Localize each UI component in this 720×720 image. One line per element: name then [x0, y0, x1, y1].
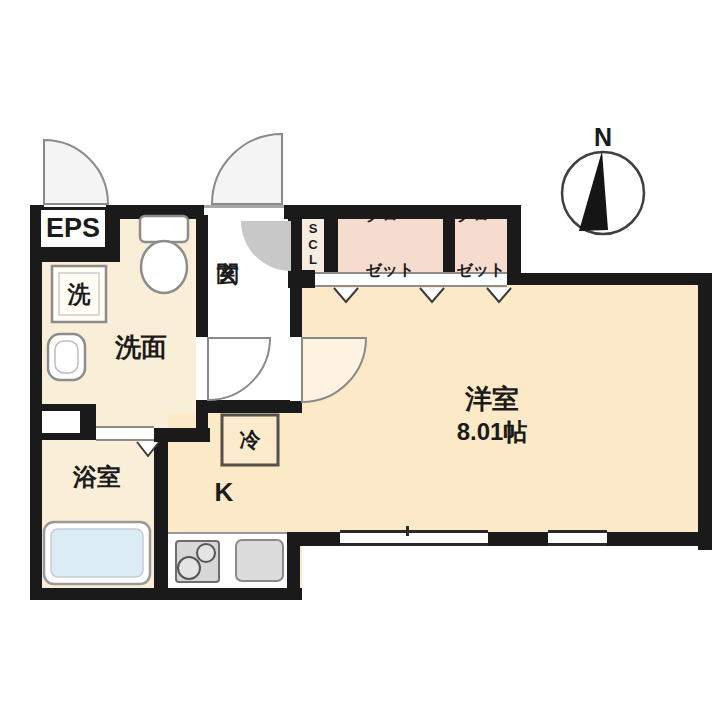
bathroom-label: 浴室 — [73, 463, 121, 491]
closet-left-line2: ゼット — [365, 261, 414, 279]
closet-door-mark — [420, 288, 444, 302]
main-room-door-swing — [302, 338, 366, 402]
kitchen-sink — [236, 540, 283, 581]
eps-door-swing — [44, 140, 108, 204]
bathtub-inner — [51, 529, 143, 577]
bathroom-door-mark — [137, 442, 159, 456]
closet-left-line1: クロー — [365, 206, 414, 224]
washing-machine-label: 洗 — [68, 281, 91, 307]
western-room-label: 洋室 — [465, 384, 519, 415]
closet-door-mark — [334, 288, 358, 302]
entrance-label: 玄関 — [215, 243, 240, 249]
shoe-closet-label: S C L — [308, 221, 317, 268]
plan-symbols — [0, 0, 720, 720]
compass-label: N — [594, 123, 612, 152]
scl-letter: L — [309, 252, 317, 268]
washroom-label: 洗面 — [115, 333, 167, 363]
refrigerator-label: 冷 — [240, 428, 261, 452]
kitchen-label: K — [215, 478, 234, 508]
toilet-bowl — [141, 241, 187, 293]
closet-left-label: クロー ゼット — [365, 169, 414, 316]
closet-right-line2: ゼット — [456, 261, 505, 279]
stove-burner — [178, 557, 200, 579]
eps-label: EPS — [46, 213, 100, 244]
scl-letter: C — [308, 236, 317, 252]
scl-letter: S — [309, 221, 318, 237]
floor-plan: EPS 玄関 S C L クロー ゼット クロー ゼット 洗面 洗 浴室 K 冷… — [0, 0, 720, 720]
stove-burner — [197, 544, 215, 562]
closet-right-label: クロー ゼット — [456, 169, 505, 316]
western-room-size: 8.01帖 — [457, 418, 528, 446]
entrance-inner-swing — [241, 221, 291, 271]
washroom-door-swing — [208, 338, 270, 400]
toilet-tank — [140, 216, 188, 242]
closet-right-line1: クロー — [456, 206, 505, 224]
entrance-door-swing — [212, 134, 282, 204]
